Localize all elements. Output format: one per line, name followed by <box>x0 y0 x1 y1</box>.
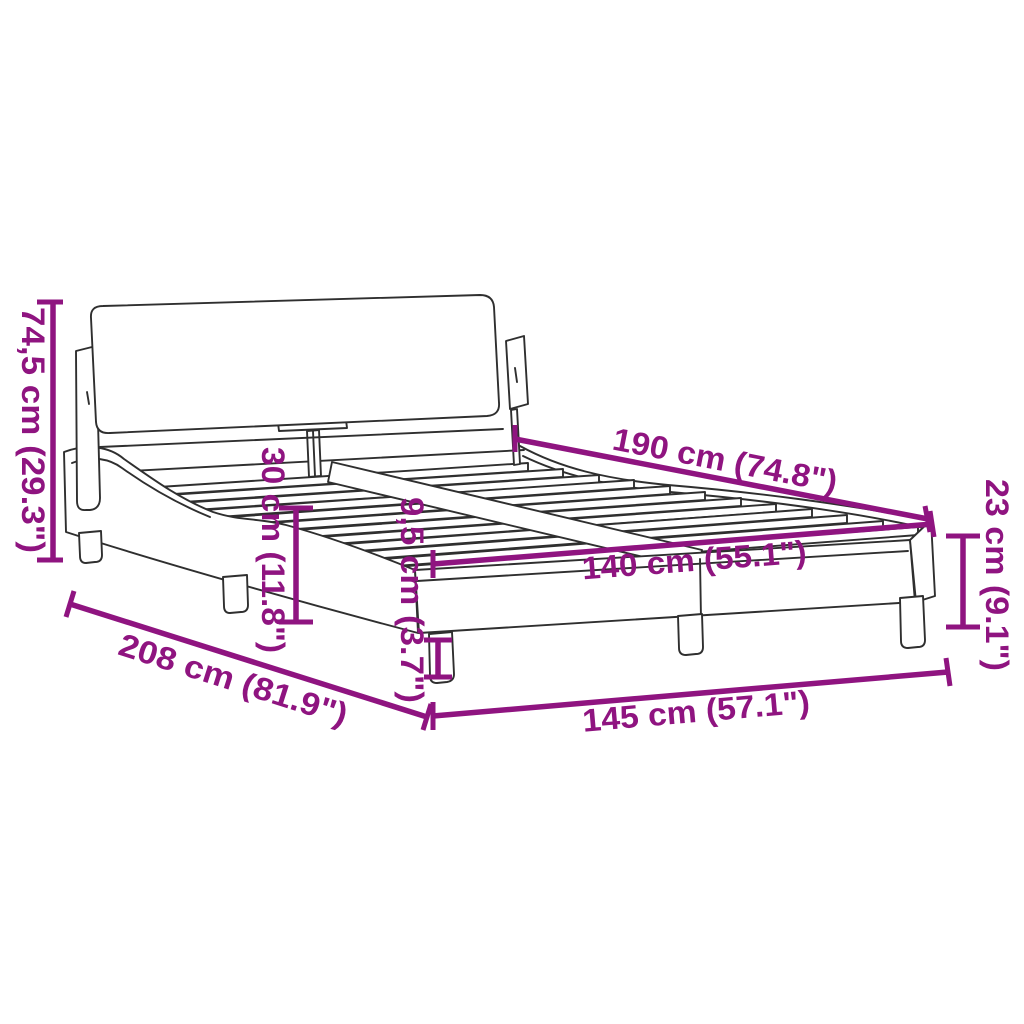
headboard-lower-bar <box>100 429 503 447</box>
bed-leg <box>79 531 102 563</box>
dimension-label-side-rail-height: 30 cm (11.8") <box>255 447 291 653</box>
bed-leg <box>678 614 703 655</box>
dimension-label-foot-end-height: 23 cm (9.1") <box>979 479 1015 671</box>
dimension-total-height: 74,5 cm (29.3") <box>15 302 63 560</box>
headboard-cushion <box>91 295 499 433</box>
bed-leg <box>223 575 248 613</box>
dimension-label-leg-height: 9,5 cm (3.7") <box>394 497 430 703</box>
dimension-cap <box>946 658 950 686</box>
dimension-foot-end-height: 23 cm (9.1") <box>946 479 1015 671</box>
dimension-diagram: 74,5 cm (29.3") 190 cm (74.8") 30 cm (11… <box>0 0 1024 1024</box>
bed-frame-diagram-canvas: 74,5 cm (29.3") 190 cm (74.8") 30 cm (11… <box>0 0 1024 1024</box>
headboard-right-post <box>506 336 528 409</box>
bed-leg <box>900 596 925 648</box>
dimension-total-width: 145 cm (57.1") <box>433 658 950 739</box>
dimension-label-total-height: 74,5 cm (29.3") <box>15 307 51 553</box>
